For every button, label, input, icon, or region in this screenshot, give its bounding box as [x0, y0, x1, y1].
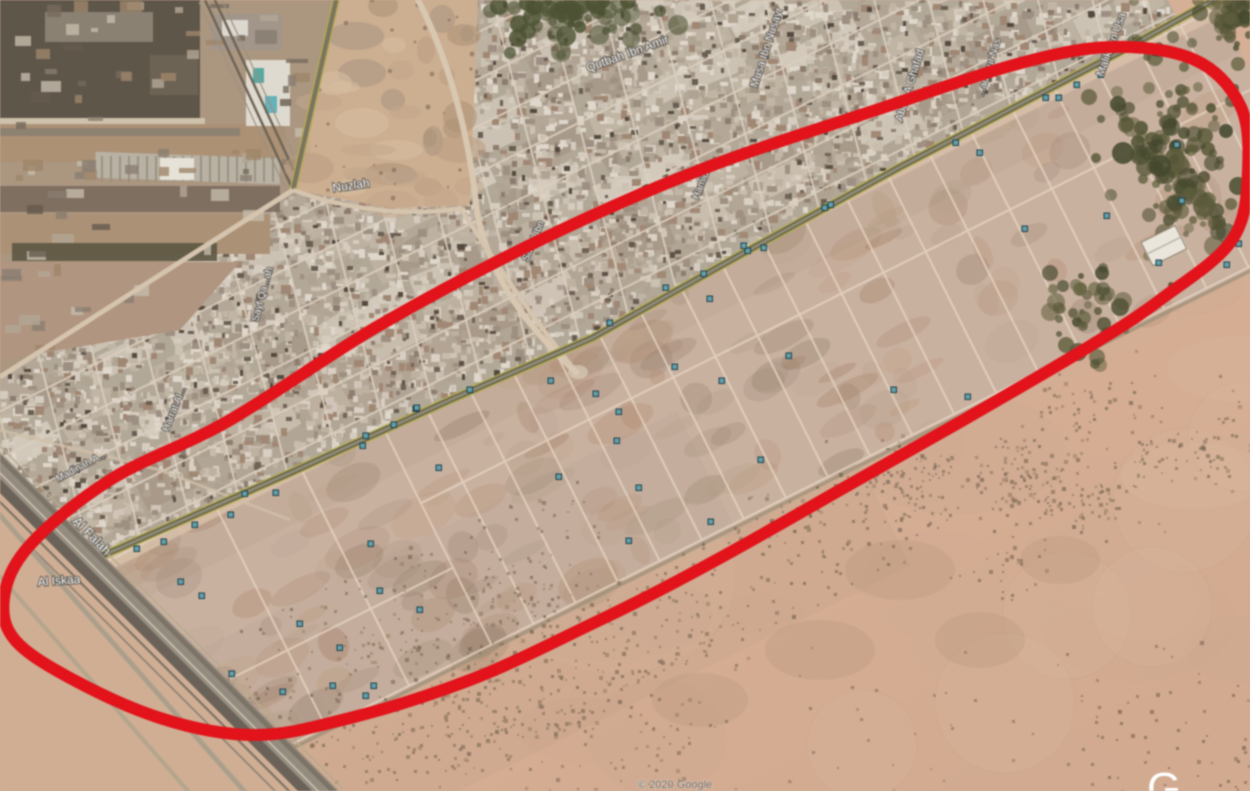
svg-text:G: G — [1147, 764, 1181, 791]
svg-text:© 2020 Google: © 2020 Google — [638, 779, 712, 791]
svg-text:Al Iskaa: Al Iskaa — [37, 572, 81, 589]
